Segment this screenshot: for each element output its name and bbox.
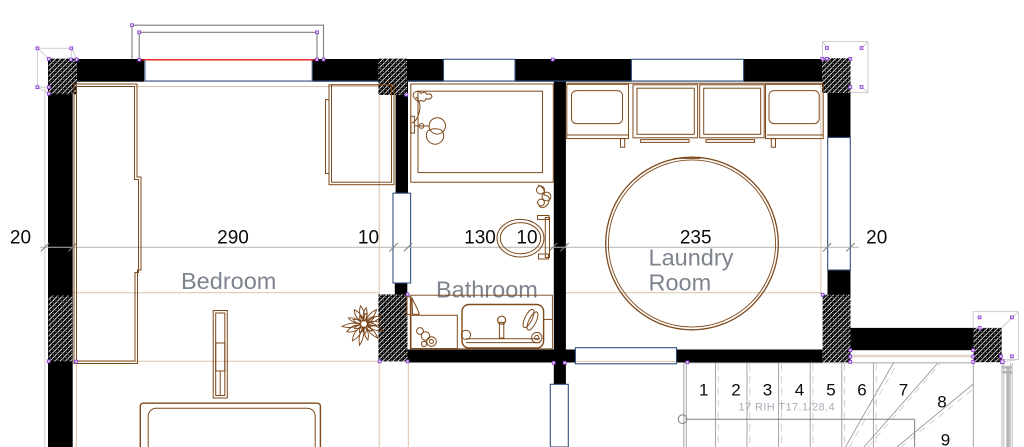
svg-text:6: 6 [857, 381, 866, 400]
svg-text:4: 4 [795, 381, 804, 400]
svg-text:Bedroom: Bedroom [181, 268, 276, 294]
svg-text:10: 10 [358, 228, 379, 249]
svg-text:2: 2 [731, 381, 740, 400]
svg-text:290: 290 [217, 228, 249, 249]
svg-text:Room: Room [649, 270, 712, 296]
svg-text:8: 8 [937, 393, 946, 412]
svg-text:5: 5 [826, 381, 835, 400]
svg-text:20: 20 [866, 228, 887, 249]
svg-text:7: 7 [899, 381, 908, 400]
svg-text:Laundry: Laundry [649, 245, 734, 271]
svg-text:130: 130 [464, 228, 496, 249]
svg-text:10: 10 [516, 228, 537, 249]
svg-text:3: 3 [763, 381, 772, 400]
svg-text:9: 9 [941, 431, 950, 447]
svg-text:20: 20 [10, 228, 31, 249]
svg-text:17 RIH T17.1/28.4: 17 RIH T17.1/28.4 [739, 402, 836, 414]
svg-text:1: 1 [699, 381, 708, 400]
svg-text:Bathroom: Bathroom [436, 277, 538, 303]
